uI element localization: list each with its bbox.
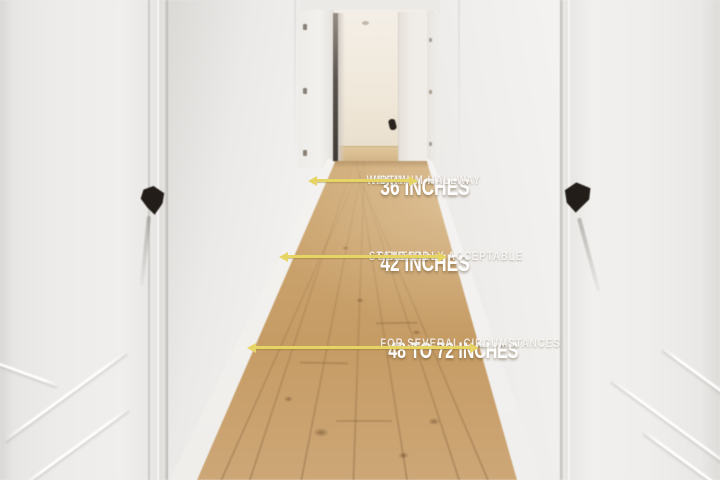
door-hinge — [429, 38, 432, 42]
measurement-block-36-inches: 36 INCHES MINIMUM HALLWAY WIDTH — [213, 175, 513, 182]
door-panel-highlight — [663, 348, 720, 403]
wall-corner-line — [294, 0, 296, 200]
door-panel-highlight — [0, 356, 58, 386]
far-right-door — [398, 12, 427, 165]
photo-layers — [0, 0, 720, 480]
left-door — [0, 0, 168, 480]
door-hinge — [303, 150, 307, 156]
door-panel-highlight — [22, 408, 129, 480]
double-arrow-icon — [287, 255, 439, 258]
door-panel-highlight — [3, 351, 126, 442]
left-door-edge-gap — [163, 0, 168, 480]
door-panel-highlight — [644, 431, 720, 480]
door-groove — [157, 0, 159, 480]
door-hinge — [429, 142, 432, 146]
double-arrow-icon — [316, 179, 410, 182]
door-hinge — [429, 90, 432, 94]
far-open-door-edge — [333, 13, 338, 164]
wall-corner-line — [458, 0, 460, 200]
hallway-photo: 36 INCHES MINIMUM HALLWAY WIDTH 42 INCHE… — [0, 0, 720, 480]
measurement-block-42-inches: 42 INCHES GENERALLY ACCEPTABLE STANDARD — [213, 251, 513, 258]
double-arrow-icon — [255, 346, 471, 349]
door-hinge — [303, 24, 307, 30]
far-open-door-face — [338, 13, 345, 163]
door-panel-highlight — [611, 379, 720, 470]
right-door-edge-gap — [560, 0, 565, 480]
door-hinge — [303, 88, 307, 94]
door-groove — [568, 0, 570, 480]
ceiling-light — [362, 21, 369, 25]
measurement-block-48-72-inches: 48 TO 72 INCHES FOR SEVERAL CIRCUMSTANCE… — [213, 338, 513, 349]
